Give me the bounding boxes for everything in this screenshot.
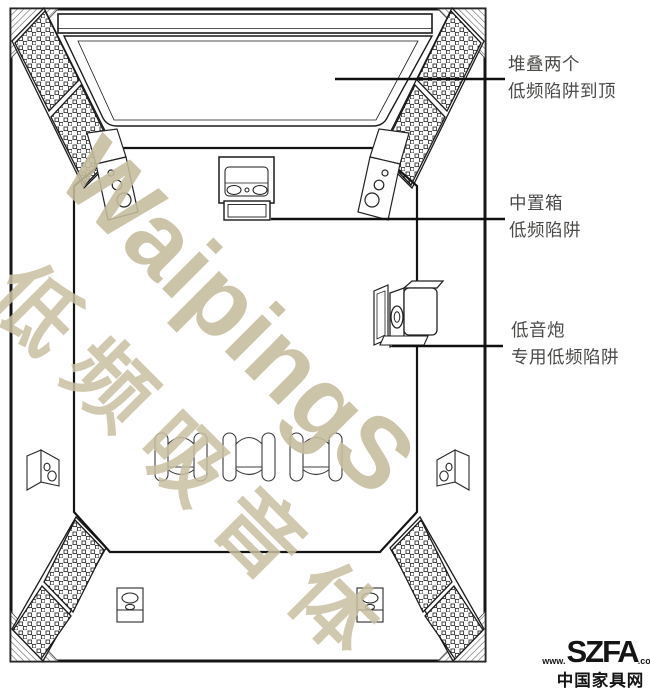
label-stacked-traps-line1: 堆叠两个 <box>508 51 616 78</box>
label-sub-trap-line1: 低音炮 <box>511 317 619 344</box>
logo-com-text: .com <box>638 658 650 665</box>
label-stacked-traps: 堆叠两个 低频陷阱到顶 <box>508 51 616 105</box>
logo-name-text: SZFA <box>566 640 637 665</box>
logo-cn-text: 中国家具网 <box>552 667 649 691</box>
label-stacked-traps-line2: 低频陷阱到顶 <box>508 78 616 105</box>
szfa-logo: www. SZFA .com 中国家具网 <box>552 640 649 691</box>
logo-www-text: www. <box>542 658 565 665</box>
label-sub-trap-line2: 专用低频陷阱 <box>511 344 619 371</box>
label-center-trap-line1: 中置箱 <box>509 190 581 217</box>
label-sub-trap: 低音炮 专用低频陷阱 <box>511 317 619 371</box>
room-acoustic-diagram: WaipingS 低频吸音体 堆叠两个 低频陷阱到顶 中置箱 低频陷阱 低音炮 … <box>0 0 650 700</box>
label-center-trap: 中置箱 低频陷阱 <box>509 190 581 244</box>
label-center-trap-line2: 低频陷阱 <box>509 217 581 244</box>
